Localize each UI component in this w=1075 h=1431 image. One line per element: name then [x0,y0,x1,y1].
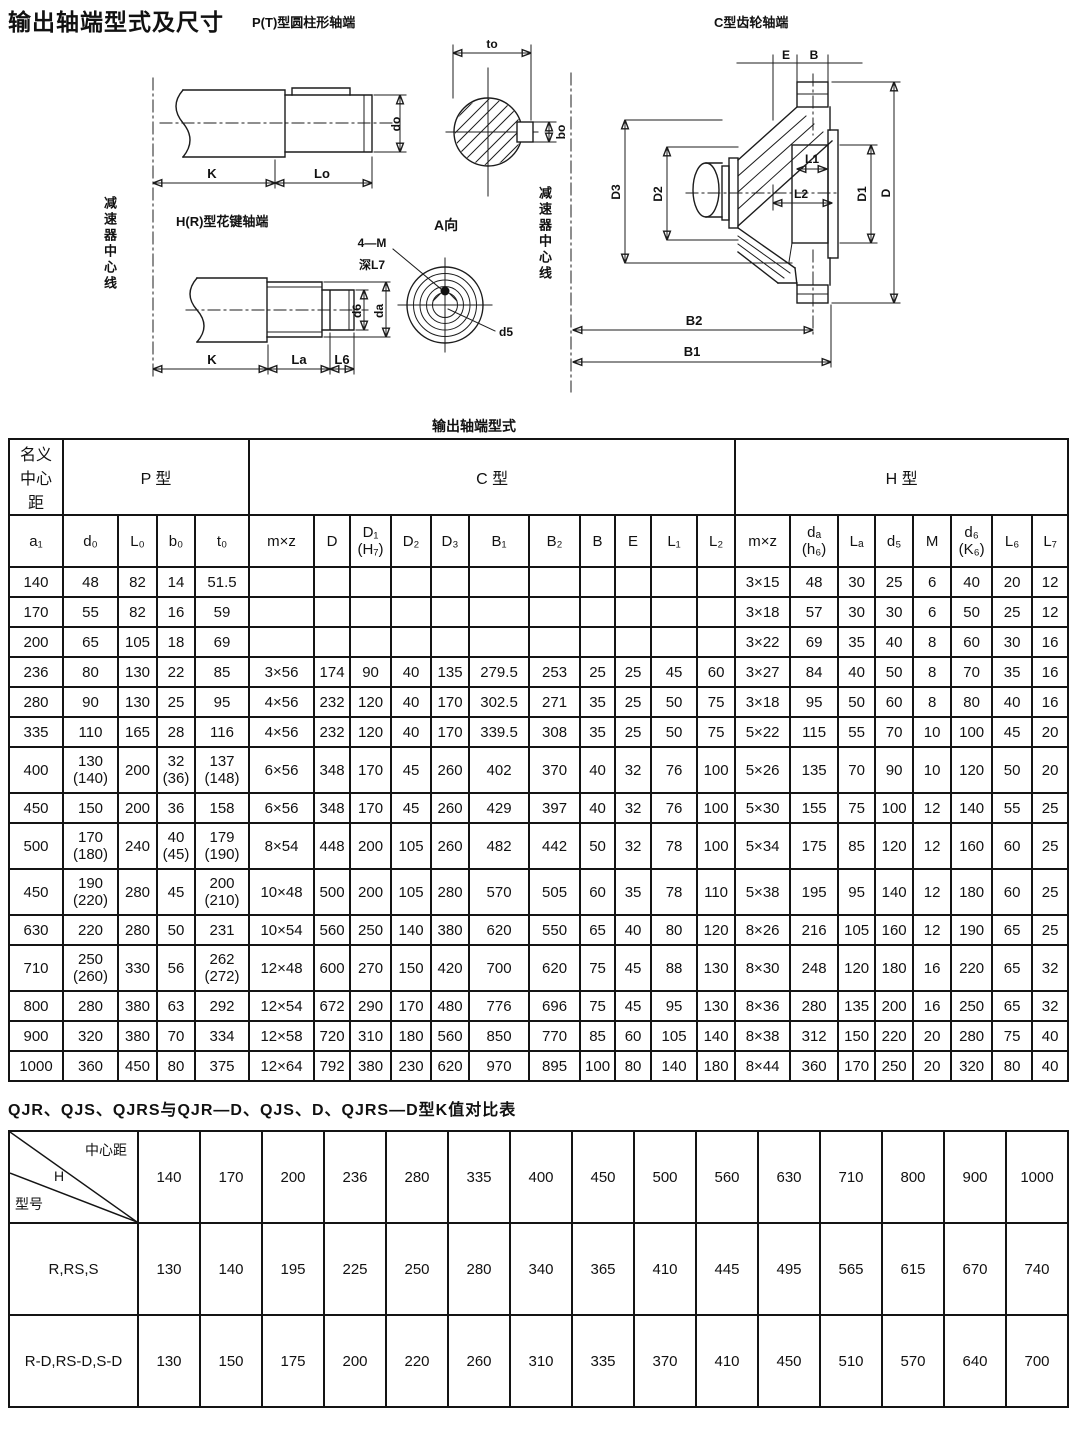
cell: 240 [118,823,157,869]
cell: 105 [391,869,431,915]
cell: 312 [790,1021,838,1051]
cell: 28 [157,717,195,747]
cell: 115 [790,717,838,747]
cell: 10 [913,717,951,747]
cell: 3×15 [735,567,790,597]
cell: 45 [615,945,651,991]
k-column-header: 500 [634,1131,696,1223]
cell: 4×56 [249,717,314,747]
k-column-header: 236 [324,1131,386,1223]
cell: 8 [913,657,951,687]
cell: 25 [615,657,651,687]
cell: 130 (140) [63,747,118,793]
cell: 88 [651,945,697,991]
cell: 56 [157,945,195,991]
cell [314,597,350,627]
cell: 16 [157,597,195,627]
k-value-cell: 175 [262,1315,324,1407]
column-header: D₂ [391,515,431,567]
cell: 160 [951,823,992,869]
cell [314,567,350,597]
cell: 895 [529,1051,580,1081]
cell: 348 [314,747,350,793]
cell: 12 [913,915,951,945]
cell: 48 [63,567,118,597]
cell: 200 [118,793,157,823]
cell [391,597,431,627]
cell: 140 [391,915,431,945]
cell: 80 [651,915,697,945]
cell: 100 [697,747,735,793]
cell [651,567,697,597]
cell: 320 [63,1021,118,1051]
row-center-distance: 710 [9,945,63,991]
cell: 280 [790,991,838,1021]
k-value-cell: 140 [200,1223,262,1315]
k-value-comparison-table: 中心距 H 型号 1401702002362803354004505005606… [8,1130,1069,1408]
row-center-distance: 450 [9,869,63,915]
dim-label-do: do [389,117,403,132]
cell: 5×22 [735,717,790,747]
column-header: D₁ (H₇) [350,515,391,567]
cell [697,567,735,597]
dim-label-Lo: Lo [314,166,330,181]
cell: 45 [157,869,195,915]
cell: 380 [431,915,469,945]
cell: 170 [838,1051,875,1081]
cell: 75 [697,717,735,747]
cell: 8×44 [735,1051,790,1081]
cell: 776 [469,991,529,1021]
cell: 55 [63,597,118,627]
cell: 158 [195,793,249,823]
cell: 82 [118,567,157,597]
cell: 25 [580,657,615,687]
table-row: 14048821451.53×154830256402012 [9,567,1068,597]
cell: 12×64 [249,1051,314,1081]
cell: 500 [314,869,350,915]
dim-label-to: to [486,37,497,51]
cell: 165 [118,717,157,747]
cell [697,627,735,657]
k-column-header: 800 [882,1131,944,1223]
cell [431,567,469,597]
cell [249,597,314,627]
cell: 3×56 [249,657,314,687]
cell: 25 [1032,915,1068,945]
cell: 50 [875,657,913,687]
k-value-cell: 280 [448,1223,510,1315]
cell: 250 [350,915,391,945]
cell: 70 [838,747,875,793]
k-value-cell: 615 [882,1223,944,1315]
dim-label-La: La [291,352,307,367]
cell: 100 [697,823,735,869]
cell: 60 [875,687,913,717]
cell: 82 [118,597,157,627]
cell: 25 [615,717,651,747]
cell: 250 [951,991,992,1021]
cell: 14 [157,567,195,597]
cell: 130 [118,657,157,687]
table-row: 8002803806329212×54672290170480776696754… [9,991,1068,1021]
k-table-header-row: 中心距 H 型号 1401702002362803354004505005606… [9,1131,1068,1223]
cell: 85 [838,823,875,869]
cell: 80 [157,1051,195,1081]
column-header: Lₐ [838,515,875,567]
k-value-cell: 220 [386,1315,448,1407]
dim-label-L2: L2 [794,187,808,201]
k-value-cell: 195 [262,1223,324,1315]
cell: 40 [391,657,431,687]
cell: 48 [790,567,838,597]
cell: 25 [875,567,913,597]
cell [350,567,391,597]
cell: 35 [580,687,615,717]
cell: 3×27 [735,657,790,687]
cell: 570 [469,869,529,915]
cell: 180 [391,1021,431,1051]
column-header: m×z [735,515,790,567]
table-row: 710250 (260)33056262 (272)12×48600270150… [9,945,1068,991]
k-value-cell: 225 [324,1223,386,1315]
cell: 3×22 [735,627,790,657]
cell: 120 [697,915,735,945]
cell: 50 [951,597,992,627]
k-value-cell: 310 [510,1315,572,1407]
cell: 32 [615,823,651,869]
row-center-distance: 500 [9,823,63,869]
h-type-drawing: K La L6 d6 da [153,278,390,374]
cell: 78 [651,869,697,915]
cell: 292 [195,991,249,1021]
k-column-header: 710 [820,1131,882,1223]
dim-label-d6: d6 [350,304,364,318]
cell: 105 [391,823,431,869]
cell: 200 [350,823,391,869]
cell: 32 [1032,991,1068,1021]
k-value-cell: 670 [944,1223,1006,1315]
cell: 10×48 [249,869,314,915]
cell: 180 [875,945,913,991]
cell: 232 [314,717,350,747]
cell: 8 [913,627,951,657]
row-center-distance: 630 [9,915,63,945]
cell: 140 [697,1021,735,1051]
table-row: 500170 (180)24040 (45)179 (190)8×5444820… [9,823,1068,869]
cell: 672 [314,991,350,1021]
cell: 3×18 [735,687,790,717]
cell: 22 [157,657,195,687]
cell: 155 [790,793,838,823]
cell [580,597,615,627]
cell: 550 [529,915,580,945]
cell: 16 [1032,657,1068,687]
column-header: L₂ [697,515,735,567]
cell: 334 [195,1021,249,1051]
a-view-drawing: 4—M 深L7 d5 [358,236,514,352]
k-value-cell: 340 [510,1223,572,1315]
cell: 110 [697,869,735,915]
cell: 16 [913,991,951,1021]
cell: 280 [118,869,157,915]
cell: 20 [913,1021,951,1051]
cell: 174 [314,657,350,687]
column-header: m×z [249,515,314,567]
cell: 130 [697,945,735,991]
cell [529,597,580,627]
cell: 339.5 [469,717,529,747]
k-value-cell: 570 [882,1315,944,1407]
k-column-header: 170 [200,1131,262,1223]
table-row: 2368013022853×561749040135279.5253252545… [9,657,1068,687]
cell: 10 [913,747,951,793]
cell: 970 [469,1051,529,1081]
cell: 78 [651,823,697,869]
row-center-distance: 280 [9,687,63,717]
cell [431,627,469,657]
cell [391,567,431,597]
k-value-cell: 510 [820,1315,882,1407]
cell: 5×26 [735,747,790,793]
column-header: b₀ [157,515,195,567]
cell: 250 (260) [63,945,118,991]
cell: 40 [951,567,992,597]
c-type-drawing: D3 D2 D1 D E B L1 L2 B2 B1 [571,48,900,392]
cell: 75 [580,991,615,1021]
cell: 75 [580,945,615,991]
k-value-cell: 260 [448,1315,510,1407]
cell: 348 [314,793,350,823]
cell: 420 [431,945,469,991]
cell [469,627,529,657]
cell: 75 [992,1021,1032,1051]
cell: 20 [1032,717,1068,747]
cell: 40 [1032,1021,1068,1051]
cell: 696 [529,991,580,1021]
cell: 95 [651,991,697,1021]
k-column-header: 280 [386,1131,448,1223]
cell: 50 [157,915,195,945]
cell: 60 [697,657,735,687]
cell: 20 [1032,747,1068,793]
cell: 35 [580,717,615,747]
k-table-body: R,RS,S1301401952252502803403654104454955… [9,1223,1068,1407]
cell: 40 [875,627,913,657]
table-row: 450190 (220)28045200 (210)10×48500200105… [9,869,1068,915]
cell: 150 [838,1021,875,1051]
cell: 10×54 [249,915,314,945]
cell: 70 [951,657,992,687]
cell: 32 [615,747,651,793]
cell: 40 [580,747,615,793]
dim-label-B2: B2 [686,313,703,328]
column-header: L₆ [992,515,1032,567]
cell: 32 (36) [157,747,195,793]
cell [431,597,469,627]
cell: 170 [431,717,469,747]
k-column-header: 630 [758,1131,820,1223]
cell: 25 [1032,793,1068,823]
cell: 3×18 [735,597,790,627]
cell: 60 [992,823,1032,869]
cell: 8×54 [249,823,314,869]
cell: 302.5 [469,687,529,717]
cell: 40 [1032,1051,1068,1081]
row-center-distance: 335 [9,717,63,747]
column-header: B₁ [469,515,529,567]
cell: 25 [1032,869,1068,915]
cell: 620 [469,915,529,945]
cell [469,597,529,627]
cell: 850 [469,1021,529,1051]
cell: 397 [529,793,580,823]
cell: 8×30 [735,945,790,991]
cell: 310 [350,1021,391,1051]
cell: 12 [913,793,951,823]
cell: 30 [992,627,1032,657]
cell: 25 [157,687,195,717]
cell: 45 [992,717,1032,747]
cell: 45 [651,657,697,687]
cell: 180 [697,1051,735,1081]
k-column-header: 900 [944,1131,1006,1223]
k-table-title: QJR、QJS、QJRS与QJR—D、QJS、D、QJRS—D型K值对比表 [8,1096,1067,1120]
cell: 55 [992,793,1032,823]
cell: 76 [651,747,697,793]
table2-corner: 中心距 H 型号 [9,1131,138,1223]
cell: 137 (148) [195,747,249,793]
cell: 220 [63,915,118,945]
cell: 80 [992,1051,1032,1081]
k-value-cell: 250 [386,1223,448,1315]
cell: 120 [875,823,913,869]
cell: 6 [913,567,951,597]
cell: 170 (180) [63,823,118,869]
cell: 482 [469,823,529,869]
cell: 253 [529,657,580,687]
cell: 170 [431,687,469,717]
k-column-header: 560 [696,1131,758,1223]
cell [529,567,580,597]
dim-label-D: D [879,188,893,197]
cell [529,627,580,657]
cell: 105 [651,1021,697,1051]
cell: 150 [391,945,431,991]
cell: 95 [195,687,249,717]
cell: 230 [391,1051,431,1081]
cell: 100 [580,1051,615,1081]
k-column-header: 400 [510,1131,572,1223]
cell: 40 (45) [157,823,195,869]
cell: 280 [431,869,469,915]
cell: 30 [838,597,875,627]
group-header-c: C 型 [249,439,735,515]
cell: 30 [838,567,875,597]
cell: 85 [195,657,249,687]
cell: 55 [838,717,875,747]
column-header: B [580,515,615,567]
cell: 16 [1032,687,1068,717]
k-value-cell: 445 [696,1223,758,1315]
column-header: d₅ [875,515,913,567]
cell: 260 [431,747,469,793]
cell [615,567,651,597]
cell: 170 [350,793,391,823]
cell: 560 [431,1021,469,1051]
cell: 76 [651,793,697,823]
cell: 100 [951,717,992,747]
cell: 85 [580,1021,615,1051]
cell: 560 [314,915,350,945]
cell: 195 [790,869,838,915]
cell: 8 [913,687,951,717]
cell: 330 [118,945,157,991]
cell: 100 [875,793,913,823]
cell: 380 [118,1021,157,1051]
dim-label-K: K [207,166,217,181]
cell: 32 [615,793,651,823]
model-label: R,RS,S [9,1223,138,1315]
cell [350,597,391,627]
k-value-cell: 130 [138,1315,200,1407]
cell: 70 [875,717,913,747]
cell [615,627,651,657]
k-value-cell: 410 [634,1223,696,1315]
dim-label-L6: L6 [334,352,349,367]
dim-label-E: E [782,48,790,62]
cell [615,597,651,627]
cell: 180 [951,869,992,915]
cell: 60 [951,627,992,657]
dim-label-bo: bo [554,125,568,140]
column-header: d₀ [63,515,118,567]
cell: 18 [157,627,195,657]
cell [314,627,350,657]
dim-label-L1: L1 [805,152,819,166]
cell: 5×38 [735,869,790,915]
cell: 140 [875,869,913,915]
k-value-cell: 495 [758,1223,820,1315]
k-value-cell: 410 [696,1315,758,1407]
table-row: R-D,RS-D,S-D1301501752002202603103353704… [9,1315,1068,1407]
cell: 770 [529,1021,580,1051]
cell: 90 [875,747,913,793]
cell: 45 [615,991,651,1021]
cell: 130 [697,991,735,1021]
cell: 262 (272) [195,945,249,991]
cell: 270 [350,945,391,991]
cell: 35 [992,657,1032,687]
cell: 32 [1032,945,1068,991]
shaft-end-dimensions-table: 名义 中心 距 P 型 C 型 H 型 a₁d₀L₀b₀t₀m×zDD₁ (H₇… [8,438,1069,1082]
k-column-header: 200 [262,1131,324,1223]
cell: 105 [118,627,157,657]
column-header: D₃ [431,515,469,567]
cell: 69 [790,627,838,657]
table-body: 14048821451.53×1548302564020121705582165… [9,567,1068,1081]
cell: 80 [63,657,118,687]
cell: 45 [391,793,431,823]
cell: 45 [391,747,431,793]
k-column-header: 335 [448,1131,510,1223]
group-header-h: H 型 [735,439,1068,515]
row-center-distance: 236 [9,657,63,687]
cell: 105 [838,915,875,945]
column-header: M [913,515,951,567]
cell: 50 [651,687,697,717]
cell: 100 [697,793,735,823]
